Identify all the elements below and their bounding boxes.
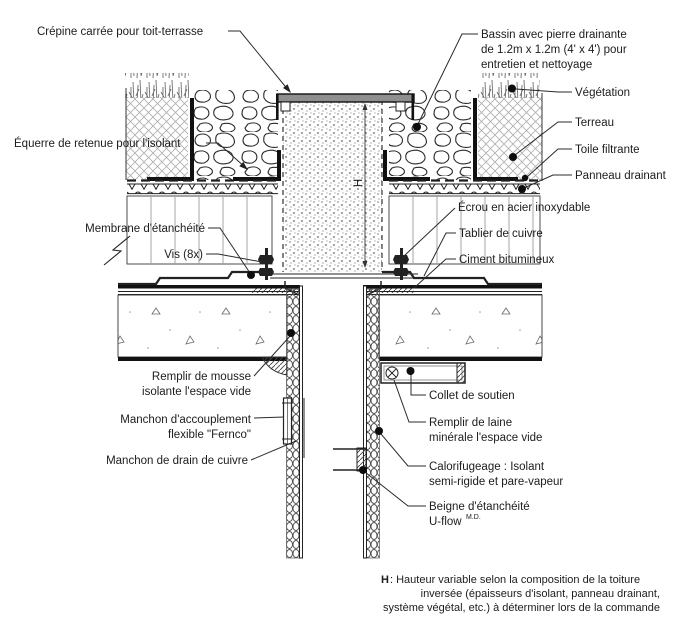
concrete-slab [118, 295, 542, 361]
callout-dot [522, 175, 528, 181]
label-manchon-drain: Manchon de drain de cuivre [106, 455, 248, 467]
technical-section-drawing: Crépine carrée pour toit-terrasse Bassin… [0, 0, 687, 627]
svg-text:flexible "Fernco": flexible "Fernco" [168, 429, 251, 441]
dimension-h-label: H [353, 179, 365, 187]
label-laine: Remplir de laine minérale l'espace vide [429, 417, 542, 444]
svg-text:Beigne d'étanchéité: Beigne d'étanchéité [429, 501, 530, 513]
foam-insulation-wedge [262, 357, 287, 375]
label-vegetation: Végétation [575, 87, 630, 99]
svg-text:U-flow: U-flow [429, 516, 462, 528]
label-membrane: Membrane d'étanchéité [85, 223, 205, 235]
label-beigne: Beigne d'étanchéité U-flow M.D. [429, 501, 530, 528]
copper-drain-pipe [300, 286, 367, 558]
label-fernco: Manchon d'accouplement flexible "Fernco" [120, 414, 251, 441]
label-mousse: Remplir de mousse isolante l'espace vide [142, 371, 251, 398]
label-terreau: Terreau [575, 117, 614, 129]
roof-drain-detail-drawing: Crépine carrée pour toit-terrasse Bassin… [0, 0, 687, 627]
right-soil-block [473, 73, 542, 181]
footnote-line1: : Hauteur variable selon la composition … [390, 574, 640, 586]
svg-text:Bassin avec pierre drainante: Bassin avec pierre drainante [481, 29, 627, 41]
label-ciment: Ciment bitumineux [459, 254, 554, 266]
footnote-line2: inversée (épaisseurs d'isolant, panneau … [421, 588, 660, 600]
footnote-bold-h: H [381, 574, 389, 586]
svg-text:Manchon d'accouplement: Manchon d'accouplement [120, 414, 251, 426]
svg-text:semi-rigide et pare-vapeur: semi-rigide et pare-vapeur [429, 476, 563, 488]
svg-text:Calorifugeage : Isolant: Calorifugeage : Isolant [429, 461, 545, 473]
label-crepine: Crépine carrée pour toit-terrasse [37, 26, 203, 38]
label-calorifugeage: Calorifugeage : Isolant semi-rigide et p… [429, 461, 563, 488]
footnote-line3: système végétal, etc.) à déterminer lors… [383, 602, 660, 614]
support-collar [381, 363, 465, 383]
callout-dot [413, 123, 421, 131]
label-tablier: Tablier de cuivre [459, 228, 543, 240]
svg-text:minérale l'espace vide: minérale l'espace vide [429, 432, 542, 444]
label-ecrou: Écrou en acier inoxydable [458, 201, 590, 214]
left-soil-block [125, 73, 194, 181]
callout-dot [518, 185, 526, 193]
label-bassin: Bassin avec pierre drainante de 1.2m x 1… [481, 29, 627, 71]
svg-text:Remplir de laine: Remplir de laine [429, 417, 512, 429]
callout-dot [407, 367, 415, 375]
callout-dot [508, 85, 516, 93]
label-panneau-drainant: Panneau drainant [575, 170, 667, 182]
callout-dot [359, 466, 367, 474]
svg-text:Remplir de mousse: Remplir de mousse [152, 371, 251, 383]
svg-text:de 1.2m x 1.2m (4' x 4') pour: de 1.2m x 1.2m (4' x 4') pour [481, 44, 627, 56]
membrane-flashing [118, 272, 542, 284]
trademark-superscript: M.D. [466, 514, 481, 521]
callout-dot [375, 427, 383, 435]
label-equerre: Équerre de retenue pour l'isolant [14, 137, 181, 150]
label-toile-filtrante: Toile filtrante [575, 144, 640, 156]
break-marks [104, 236, 130, 265]
label-vis: Vis (8x) [164, 249, 203, 261]
deck-layers [118, 285, 542, 295]
callout-dot [247, 271, 255, 279]
callout-dot [287, 329, 295, 337]
svg-text:isolante l'espace vide: isolante l'espace vide [142, 386, 251, 398]
strainer-cap-plate [277, 94, 414, 102]
label-collet: Collet de soutien [429, 390, 515, 402]
callout-dot [509, 153, 517, 161]
svg-text:entretien et nettoyage: entretien et nettoyage [481, 59, 592, 71]
footnote: H : Hauteur variable selon la compositio… [381, 574, 660, 614]
